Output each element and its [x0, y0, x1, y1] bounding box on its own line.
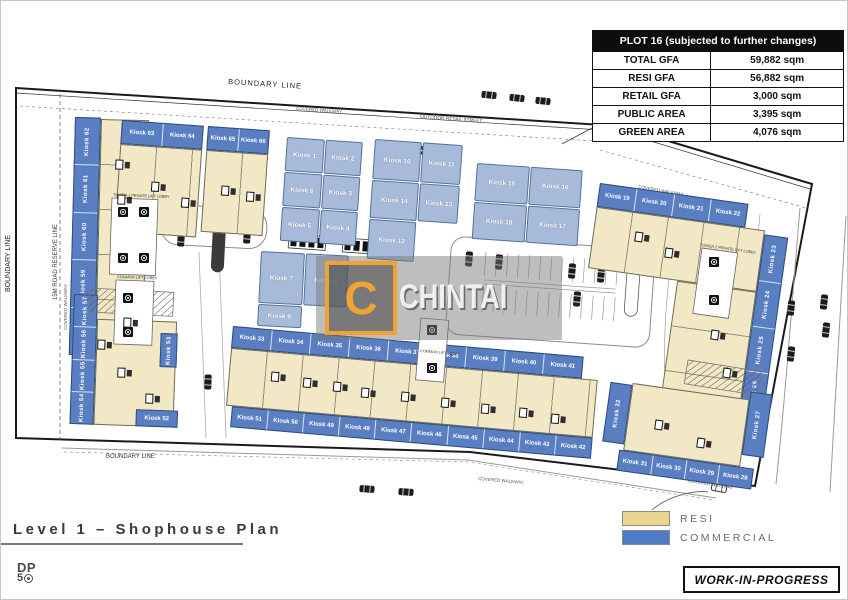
site-plan-page: BOUNDARY LINE BOUNDARY LINE 15M ROAD RES…: [0, 0, 848, 600]
watermark-letter: C: [344, 275, 377, 321]
fixture-icon: [146, 394, 160, 403]
watermark-wordmark: CHINTAI: [399, 278, 507, 317]
fixture-icon: [116, 160, 130, 169]
elevator-icon: [139, 253, 149, 263]
table-row-value: 3,395 sqm: [711, 106, 843, 123]
legend-swatch: [622, 511, 670, 526]
fixture-icon: [181, 198, 196, 208]
table-row-label: GREEN AREA: [593, 124, 711, 141]
fixture-icon: [635, 232, 650, 243]
elevator-icon: [123, 327, 133, 337]
legend: RESICOMMERCIAL: [622, 511, 776, 549]
crosswalk-hatch: [684, 360, 761, 395]
table-row-label: RESI GFA: [593, 70, 711, 87]
table-row-value: 4,076 sqm: [711, 124, 843, 141]
table-row: GREEN AREA4,076 sqm: [593, 123, 843, 141]
table-row: PUBLIC AREA3,395 sqm: [593, 105, 843, 123]
title-underline: [0, 543, 243, 545]
elevator-icon: [123, 293, 133, 303]
fixture-icon: [151, 182, 166, 192]
fixture-icon: [655, 420, 670, 431]
fixture-icon: [665, 248, 680, 259]
table-row-value: 3,000 sqm: [711, 88, 843, 105]
table-row-label: RETAIL GFA: [593, 88, 711, 105]
plot-info-table-header: PLOT 16 (subjected to further changes): [593, 31, 843, 51]
fixture-icon: [401, 392, 416, 402]
legend-label: RESI: [680, 513, 715, 525]
legend-item: RESI: [622, 511, 776, 526]
fixture-icon: [361, 388, 376, 398]
elevator-icon: [118, 207, 128, 217]
fixture-icon: [98, 340, 112, 349]
elevator-icon: [427, 363, 437, 373]
fixture-icon: [333, 382, 348, 392]
fixture-icon: [697, 438, 712, 449]
table-row: TOTAL GFA59,882 sqm: [593, 51, 843, 69]
work-in-progress-stamp: WORK-IN-PROGRESS: [683, 566, 840, 593]
fixture-icon: [118, 368, 132, 377]
table-row-value: 56,882 sqm: [711, 70, 843, 87]
dp50-circle-icon: [24, 574, 33, 583]
fixture-icon: [481, 404, 496, 414]
fixture-icon: [519, 408, 534, 418]
fixture-icon: [711, 330, 726, 341]
plot-info-table-body: TOTAL GFA59,882 sqmRESI GFA56,882 sqmRET…: [593, 51, 843, 141]
table-row-label: TOTAL GFA: [593, 52, 711, 69]
fixture-icon: [551, 414, 566, 424]
plot-info-table: PLOT 16 (subjected to further changes) T…: [592, 30, 844, 142]
lift-lobby-label: COMMON LIFT LOBBY: [117, 275, 158, 280]
elevator-icon: [709, 295, 719, 305]
table-row-value: 59,882 sqm: [711, 52, 843, 69]
page-title: Level 1 – Shophouse Plan: [13, 521, 282, 538]
table-row: RETAIL GFA3,000 sqm: [593, 87, 843, 105]
legend-label: COMMERCIAL: [680, 532, 776, 544]
fixture-icon: [303, 378, 318, 388]
legend-leader-line: [652, 492, 708, 510]
table-leader-line: [562, 128, 592, 144]
fixture-icon: [246, 192, 261, 202]
table-row: RESI GFA56,882 sqm: [593, 69, 843, 87]
dp-logo-number: 5: [17, 573, 23, 583]
legend-item: COMMERCIAL: [622, 530, 776, 545]
dp-logo: DP 5: [17, 563, 36, 583]
legend-swatch: [622, 530, 670, 545]
watermark-logo: C: [325, 261, 397, 335]
fixture-icon: [221, 186, 236, 196]
fixture-icon: [441, 398, 456, 408]
elevator-icon: [709, 257, 719, 267]
elevator-icon: [139, 207, 149, 217]
elevator-icon: [118, 253, 128, 263]
table-row-label: PUBLIC AREA: [593, 106, 711, 123]
fixture-icon: [271, 372, 286, 382]
